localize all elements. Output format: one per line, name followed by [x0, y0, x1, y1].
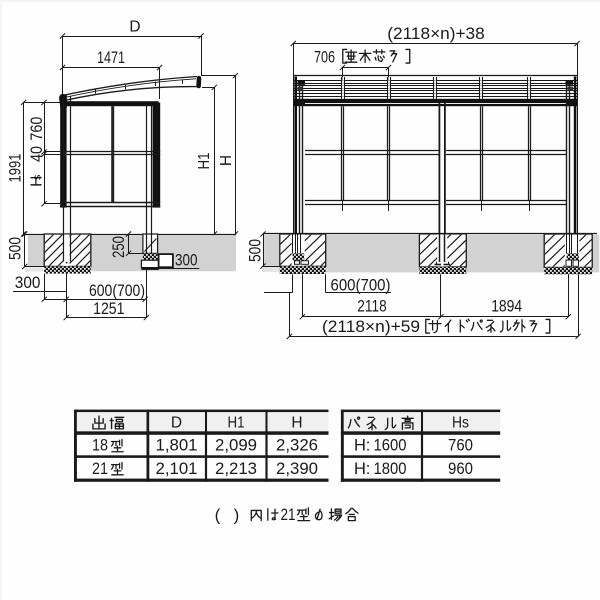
- svg-text:21: 21: [92, 460, 108, 478]
- svg-text:H: H: [218, 155, 235, 166]
- svg-text:1,801: 1,801: [156, 437, 198, 455]
- svg-text:1600: 1600: [374, 437, 407, 455]
- svg-text:1991: 1991: [7, 154, 25, 183]
- svg-text:): ): [234, 506, 240, 525]
- svg-text:960: 960: [448, 460, 473, 478]
- svg-text:D: D: [171, 415, 182, 432]
- svg-text:1471: 1471: [97, 49, 125, 67]
- svg-text:760: 760: [448, 437, 473, 455]
- svg-text:2,099: 2,099: [215, 437, 257, 455]
- svg-text:2,390: 2,390: [276, 460, 318, 478]
- svg-text:500: 500: [7, 237, 25, 260]
- svg-text:706: 706: [314, 49, 335, 67]
- svg-text:D: D: [129, 19, 140, 36]
- svg-text:1894: 1894: [491, 298, 522, 316]
- svg-text:250: 250: [110, 236, 128, 258]
- svg-text:2,101: 2,101: [156, 460, 198, 478]
- svg-text:2,326: 2,326: [276, 437, 318, 455]
- svg-text:s: s: [32, 174, 44, 180]
- svg-text:H: H: [354, 460, 366, 478]
- svg-text:H1: H1: [196, 153, 213, 170]
- svg-text:H: H: [354, 437, 366, 455]
- svg-text:300: 300: [175, 251, 198, 269]
- svg-text::: :: [366, 460, 371, 478]
- svg-text:500: 500: [246, 239, 264, 262]
- svg-text::: :: [366, 437, 371, 455]
- svg-text:1251: 1251: [93, 300, 124, 318]
- svg-text:Hs: Hs: [452, 415, 469, 432]
- svg-text:(2118×n)+59: (2118×n)+59: [322, 318, 420, 336]
- svg-text:600(700): 600(700): [89, 282, 145, 300]
- svg-text:2,213: 2,213: [215, 460, 257, 478]
- svg-text:760: 760: [28, 117, 46, 141]
- svg-text:1800: 1800: [374, 460, 407, 478]
- svg-text:2118: 2118: [357, 298, 386, 316]
- svg-text:18: 18: [92, 437, 108, 455]
- svg-text:300: 300: [15, 274, 41, 292]
- svg-text:40: 40: [28, 146, 46, 162]
- svg-text:600(700): 600(700): [331, 277, 391, 295]
- svg-text:H: H: [291, 415, 302, 432]
- svg-text:(2118×n)+38: (2118×n)+38: [387, 25, 485, 43]
- svg-text:21: 21: [281, 506, 296, 524]
- svg-text:H1: H1: [228, 415, 245, 432]
- svg-text:(: (: [215, 506, 221, 525]
